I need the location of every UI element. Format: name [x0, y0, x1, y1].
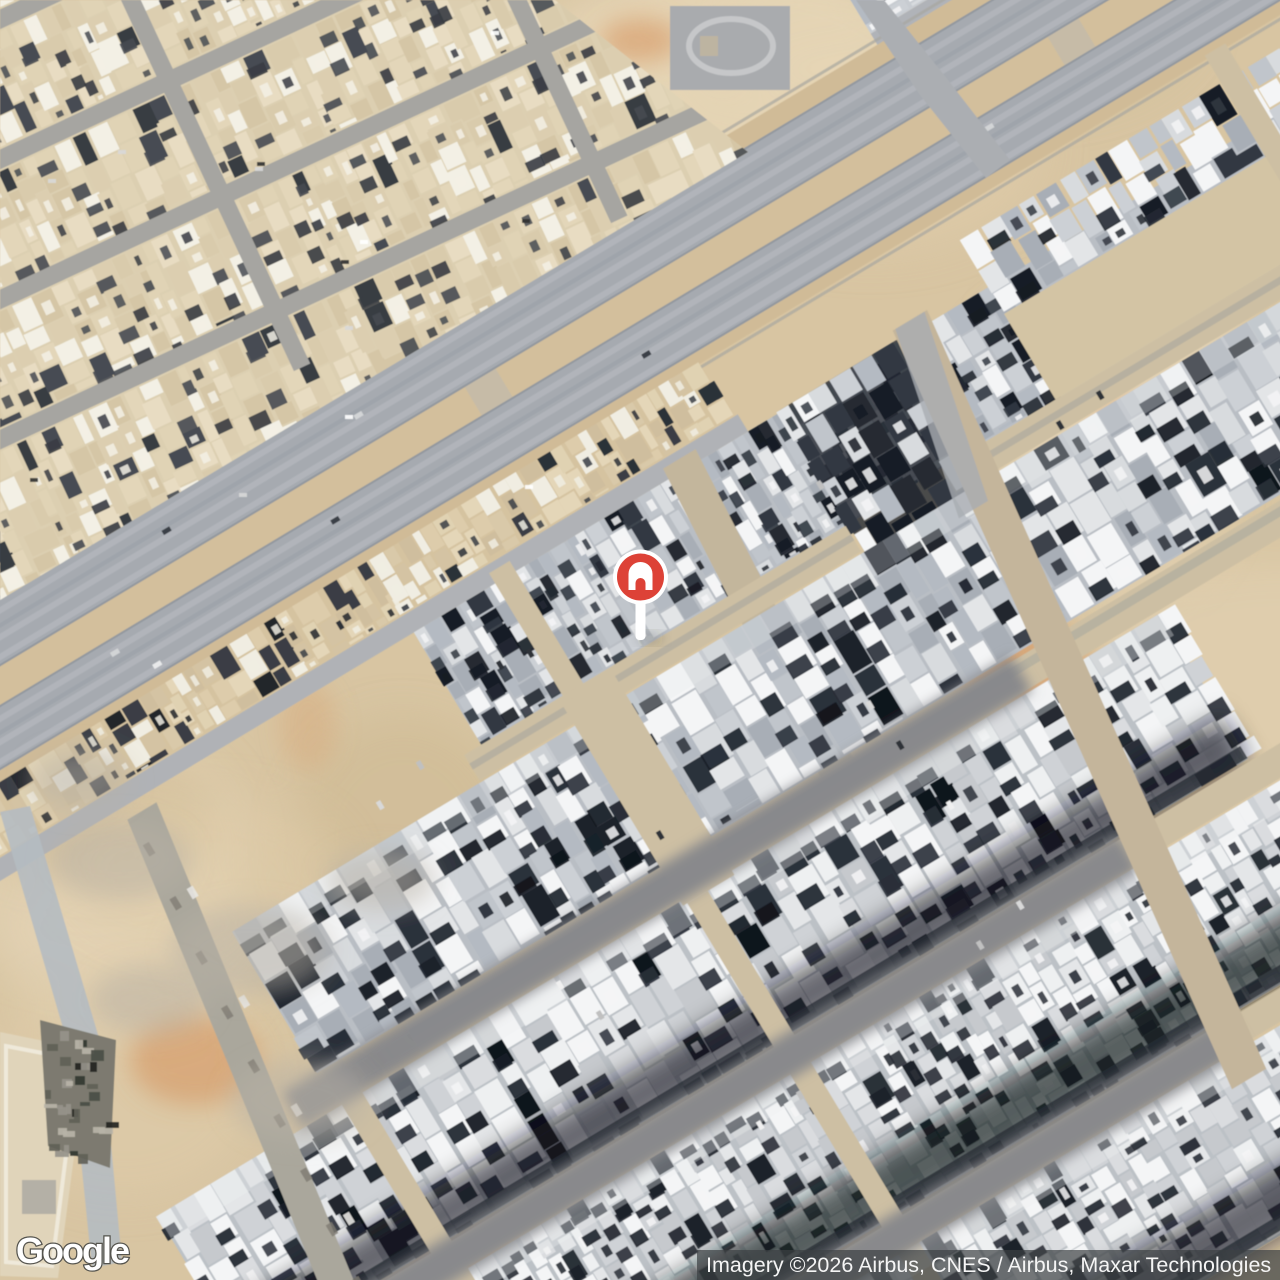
svg-text:Imagery ©2026 Airbus, CNES / A: Imagery ©2026 Airbus, CNES / Airbus, Max…: [706, 1253, 1271, 1277]
svg-text:Google: Google: [16, 1230, 129, 1271]
